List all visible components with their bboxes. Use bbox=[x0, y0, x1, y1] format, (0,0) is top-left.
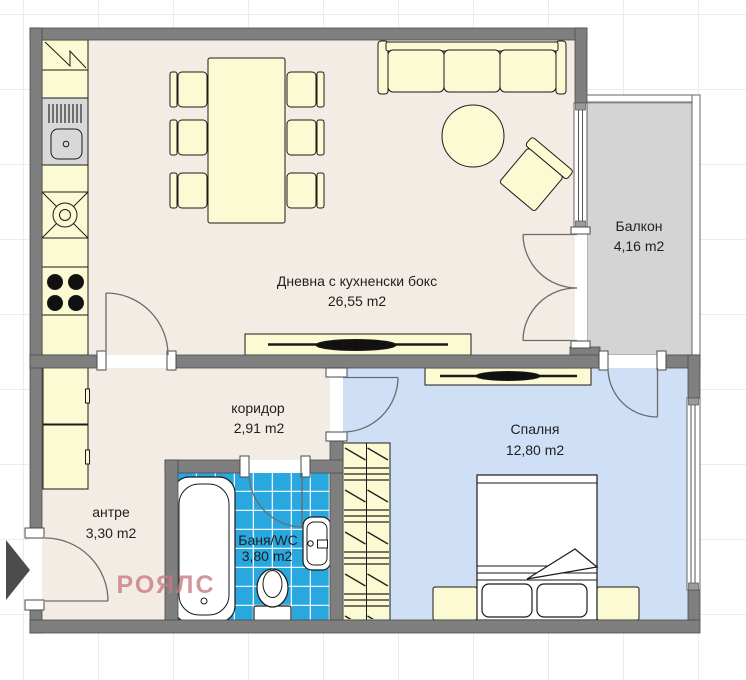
nightstand-left bbox=[433, 587, 477, 620]
entry-cabinets bbox=[43, 367, 90, 489]
kitchen-block bbox=[42, 40, 88, 355]
label-entry-name: антре bbox=[92, 504, 130, 520]
balcony-railing-top bbox=[583, 95, 700, 102]
label-bedroom-area: 12,80 m2 bbox=[506, 442, 565, 458]
wall-main-horizontal bbox=[176, 355, 607, 368]
tv-cabinet-bedroom bbox=[425, 368, 591, 385]
dining-chairs-left bbox=[170, 72, 207, 208]
label-entry-area: 3,30 m2 bbox=[86, 525, 137, 541]
pillow bbox=[482, 584, 532, 617]
cabinet bbox=[43, 367, 88, 424]
wall-main-horizontal bbox=[30, 355, 105, 368]
kitchen-counter bbox=[42, 70, 88, 98]
floorplan-canvas: Дневна с кухненски бокс 26,55 m2 Балкон … bbox=[0, 0, 746, 680]
cabinet-handle bbox=[86, 389, 90, 403]
label-bathroom-area: 3,80 m2 bbox=[242, 548, 293, 564]
label-corridor-name: коридор bbox=[231, 400, 285, 416]
dining-table bbox=[208, 58, 285, 223]
label-bathroom-name: Баня/WC bbox=[238, 532, 298, 548]
kitchen-counter bbox=[42, 238, 88, 267]
dining-set bbox=[170, 58, 324, 223]
bathtub bbox=[173, 477, 235, 622]
pillow bbox=[537, 584, 587, 617]
wall-living-right bbox=[575, 28, 587, 103]
label-living-name: Дневна с кухненски бокс bbox=[277, 273, 437, 289]
wall-left bbox=[30, 28, 42, 537]
washbasin bbox=[303, 517, 331, 570]
label-bedroom-name: Спалня bbox=[511, 421, 560, 437]
label-balcony-area: 4,16 m2 bbox=[614, 238, 665, 254]
cabinet-handle bbox=[86, 450, 90, 464]
kitchen-counter bbox=[42, 315, 88, 355]
cabinet bbox=[43, 425, 88, 489]
dining-chairs-right bbox=[287, 72, 324, 208]
wardrobe bbox=[343, 443, 390, 620]
label-corridor-area: 2,91 m2 bbox=[234, 420, 285, 436]
toilet bbox=[254, 569, 291, 621]
tv-cabinet-living bbox=[245, 334, 471, 355]
coffee-table bbox=[442, 105, 504, 167]
wall-bedroom-right-upper bbox=[688, 355, 700, 398]
window-bedroom bbox=[687, 398, 700, 590]
balcony-railing-right bbox=[692, 95, 700, 355]
window-living-balcony bbox=[574, 103, 587, 228]
sofa bbox=[378, 41, 566, 94]
stove-burner-outer bbox=[53, 203, 77, 227]
label-balcony-name: Балкон bbox=[616, 218, 663, 234]
wall-bottom bbox=[30, 620, 700, 633]
sink-basin bbox=[51, 129, 82, 159]
agency-watermark: РОЯЛС bbox=[116, 571, 215, 599]
wall-top bbox=[30, 28, 587, 40]
wall-bedroom-right-lower bbox=[688, 590, 700, 620]
label-living-area: 26,55 m2 bbox=[328, 293, 387, 309]
floorplan-drawing: Дневна с кухненски бокс 26,55 m2 Балкон … bbox=[0, 0, 746, 680]
kitchen-counter bbox=[42, 165, 88, 192]
double-bed bbox=[477, 475, 597, 620]
tv-icon bbox=[476, 372, 540, 381]
entrance-arrow-icon bbox=[6, 540, 30, 600]
fridge-icon bbox=[42, 40, 88, 70]
nightstand-right bbox=[597, 587, 639, 620]
